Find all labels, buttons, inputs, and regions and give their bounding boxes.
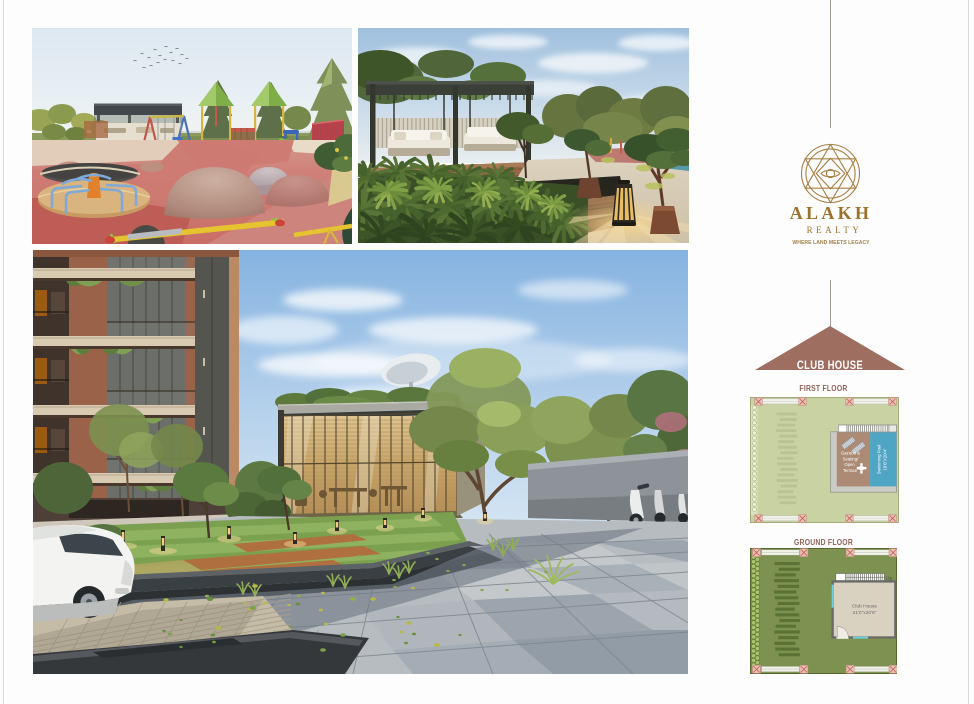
svg-text:21'0"x20'6": 21'0"x20'6": [853, 610, 877, 616]
svg-text:Seating/: Seating/: [843, 456, 860, 461]
svg-text:10'0"X20'4": 10'0"X20'4": [882, 448, 887, 470]
svg-text:Club House: Club House: [852, 604, 877, 610]
svg-text:Swimming Pool: Swimming Pool: [877, 445, 882, 475]
svg-text:Open: Open: [844, 462, 855, 467]
svg-text:Gazebo &: Gazebo &: [841, 451, 860, 456]
svg-text:Terrace: Terrace: [843, 468, 858, 473]
